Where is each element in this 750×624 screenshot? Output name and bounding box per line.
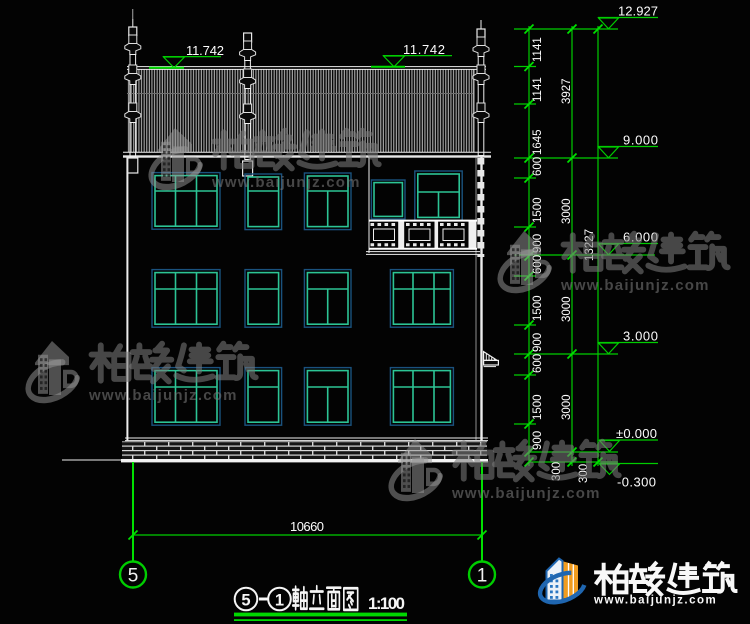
svg-text:www.baijunjz.com: www.baijunjz.com xyxy=(593,595,717,607)
svg-text:900: 900 xyxy=(532,333,544,352)
svg-text:1: 1 xyxy=(275,592,284,610)
svg-text:1645: 1645 xyxy=(532,129,544,155)
svg-text:5: 5 xyxy=(241,592,250,610)
svg-text:12.927: 12.927 xyxy=(618,4,658,19)
svg-text:±0.000: ±0.000 xyxy=(616,426,657,441)
svg-text:1: 1 xyxy=(477,566,488,587)
svg-text:3.000: 3.000 xyxy=(623,329,658,344)
svg-text:600: 600 xyxy=(532,354,544,373)
svg-text:900: 900 xyxy=(532,431,544,450)
svg-text:600: 600 xyxy=(532,157,544,176)
svg-text:1:100: 1:100 xyxy=(368,594,405,613)
svg-text:3927: 3927 xyxy=(561,78,573,104)
svg-text:1500: 1500 xyxy=(532,295,544,321)
svg-text:1141: 1141 xyxy=(532,77,544,102)
svg-text:-0.300: -0.300 xyxy=(617,475,656,490)
svg-text:11.742: 11.742 xyxy=(403,42,445,57)
svg-text:9.000: 9.000 xyxy=(623,133,658,148)
svg-text:1500: 1500 xyxy=(532,197,544,223)
svg-text:10660: 10660 xyxy=(290,519,324,534)
svg-text:3000: 3000 xyxy=(561,198,573,224)
svg-text:11.742: 11.742 xyxy=(186,43,224,58)
svg-text:1500: 1500 xyxy=(532,394,544,420)
svg-text:1141: 1141 xyxy=(532,37,544,62)
svg-text:3000: 3000 xyxy=(561,296,573,322)
svg-text:5: 5 xyxy=(128,566,139,587)
svg-text:3000: 3000 xyxy=(561,394,573,420)
